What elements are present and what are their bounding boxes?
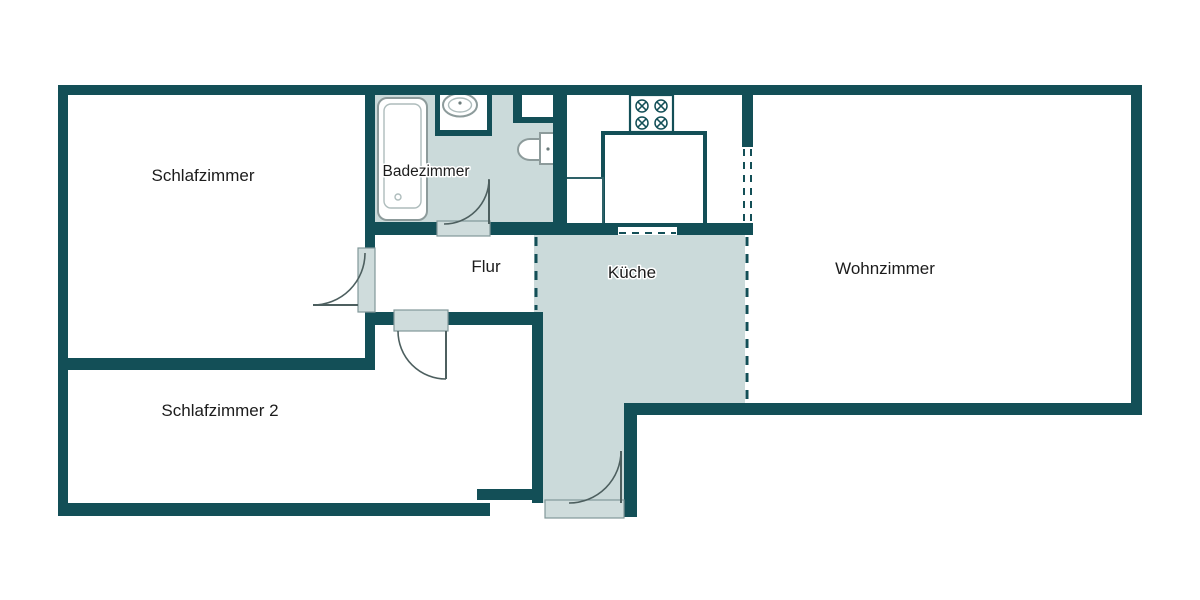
badezimmer-bottom-wall-left <box>365 222 437 235</box>
shaft-niche-wall-left <box>513 95 522 117</box>
entrance-door-threshold <box>545 500 624 518</box>
room-label-wohnzimmer: Wohnzimmer <box>835 259 935 278</box>
washbasin-niche-wall-right <box>487 95 492 136</box>
washbasin-niche-wall-left <box>435 95 440 136</box>
stove-four-burners-icon <box>630 95 673 132</box>
room-label-kueche: Küche <box>608 263 656 282</box>
kueche-bottom-wall-right <box>677 223 753 235</box>
flur-bottom-wall-right <box>448 312 543 325</box>
kueche-bottom-wall-left <box>557 223 618 235</box>
outer-wall-bottom <box>58 503 490 516</box>
kueche-wohnzimmer-wall-upper <box>742 95 753 147</box>
room-label-schlafzimmer2: Schlafzimmer 2 <box>161 401 278 420</box>
outer-wall-right <box>1131 85 1142 415</box>
schlafzimmer-divider-wall <box>58 358 375 370</box>
kueche-floor <box>534 235 745 403</box>
room-label-schlafzimmer: Schlafzimmer <box>152 166 255 185</box>
badezimmer-bottom-wall-right <box>490 222 557 235</box>
kueche-entry-floor <box>543 403 624 503</box>
kitchen-cabinet-icon <box>565 178 603 225</box>
kueche-wohnzimmer-wall-opening <box>744 149 751 221</box>
bathtub-icon <box>378 98 427 220</box>
washbasin-icon <box>443 94 477 117</box>
room-label-flur: Flur <box>471 257 501 276</box>
washbasin-niche-wall-bottom <box>435 130 492 136</box>
bathroom-shaft-niche <box>522 95 553 117</box>
wohnzimmer-bottom-wall <box>628 403 1142 415</box>
schlafzimmer-door-threshold <box>358 248 375 312</box>
shaft-niche-wall-bottom <box>513 117 557 123</box>
schlafzimmer-door <box>313 253 365 305</box>
entry-column-right-wall <box>624 403 637 517</box>
kitchen-fixtures <box>565 95 705 225</box>
schlafzimmer2-door-threshold <box>394 310 448 331</box>
floorplan-drawing: Schlafzimmer Badezimmer Flur Küche Wohnz… <box>0 0 1200 600</box>
schlafzimmer2-door <box>398 331 446 379</box>
outer-wall-left <box>58 85 68 515</box>
badezimmer-kueche-wall <box>553 95 567 235</box>
flur-bottom-wall-left <box>365 312 394 325</box>
outer-wall-top <box>58 85 1142 95</box>
kitchen-counter-icon <box>603 133 705 225</box>
room-label-badezimmer: Badezimmer <box>383 163 470 180</box>
floorplan-page: Schlafzimmer Badezimmer Flur Küche Wohnz… <box>0 0 1200 600</box>
entry-column-left-wall <box>532 312 543 503</box>
